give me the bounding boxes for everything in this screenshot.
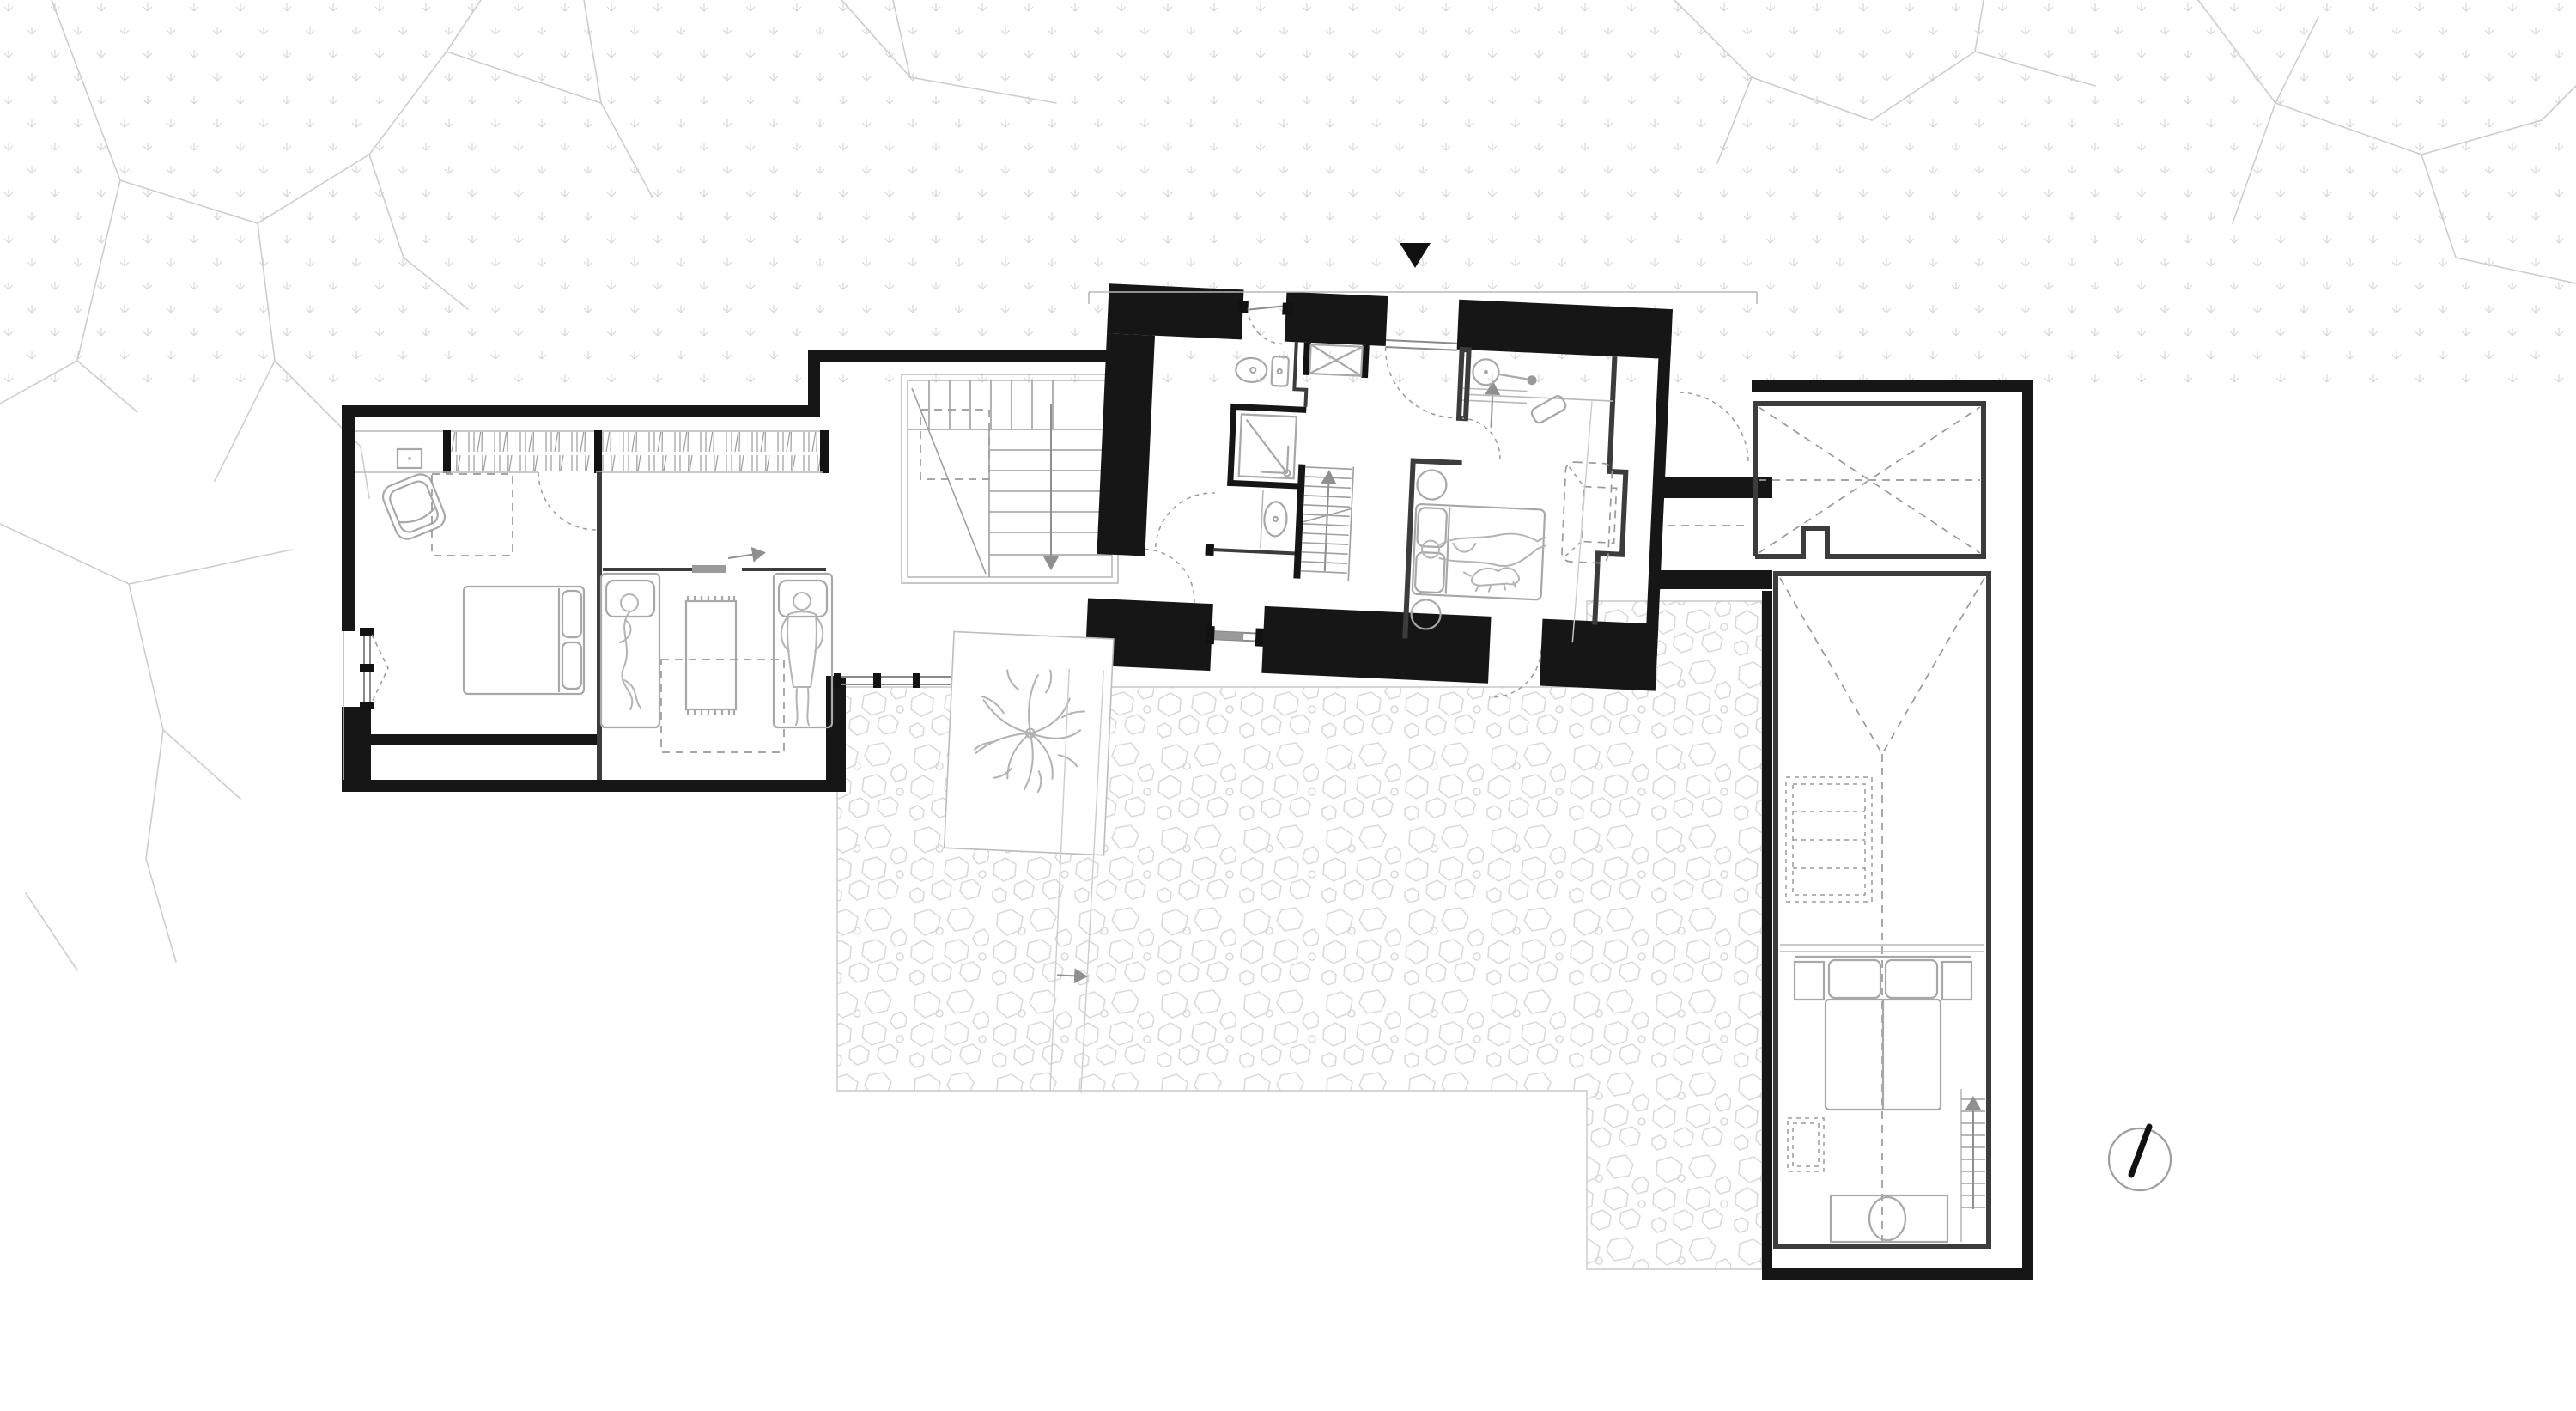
washbasin [1261,490,1288,550]
double-bed-west [464,587,584,694]
tree-branches-mid-left [0,524,292,970]
shower [1227,404,1306,490]
south-corner-pier [1540,619,1658,691]
right-wing [1752,380,2033,1280]
carport [1755,404,1984,556]
court-north-door-swing [1680,392,1748,461]
lying-figure-supine [781,593,823,725]
pier-top-right [1457,300,1673,359]
site-wall-left-lower [1762,591,1772,1280]
left-wing-bottom-outer-wall [342,780,846,792]
sleeping-figure-side [620,594,641,709]
guest-stair [1961,1089,1985,1242]
west-door-swing [1143,550,1197,604]
master-bedroom-east [1405,348,1614,648]
shelving-dashed [1786,777,1872,902]
north-indicator [2109,1127,2171,1190]
roof-dashed [1780,578,1984,1242]
bedroom-door-swing [1461,418,1502,459]
person-on-bed [1421,530,1546,568]
staircase-room [902,374,1118,583]
vanity-with-basin [1831,1195,1947,1242]
west-wall [1097,333,1155,556]
dog-on-bed [1463,566,1520,593]
site-wall-bottom [1762,1268,2033,1280]
stair-upper-flight [908,380,1112,429]
glazing-junction-stub [826,676,846,792]
armchair [380,471,448,543]
left-wing [342,405,846,792]
left-wing-bottom-inner-wall [371,734,598,745]
skylight-dashed-kids [661,660,784,752]
left-wing-top-wall [342,405,814,417]
floor-plan-canvas [0,0,2576,1411]
pier-top-middle [1285,292,1388,346]
guest-house [1776,574,1989,1246]
single-bed-1 [601,574,659,727]
left-wing-corner-block [342,707,371,792]
south-wall-right-bar [1261,606,1491,684]
fringed-rug [686,596,736,715]
side-table-north [1417,470,1448,501]
door-swing-master-west [538,472,596,530]
bathroom-door [1156,490,1299,559]
left-wing-left-wall [342,405,355,631]
hall-top-jog [808,350,820,417]
sofa-dashed-in-niche [1562,462,1618,564]
hall-top-wall [808,350,1127,362]
patio-sliding-door [1206,626,1265,647]
site-wall-top [1752,380,2033,392]
stair-up [1293,465,1353,581]
kids-room-wall-and-sliding-door [603,553,826,573]
stair-opening-dashed [920,410,989,479]
tree-pad [945,632,1114,855]
site-wall-right [2022,380,2033,1280]
guest-bed [1795,957,1971,1110]
single-bed-2 [774,574,832,727]
wardrobe-band [355,430,829,473]
